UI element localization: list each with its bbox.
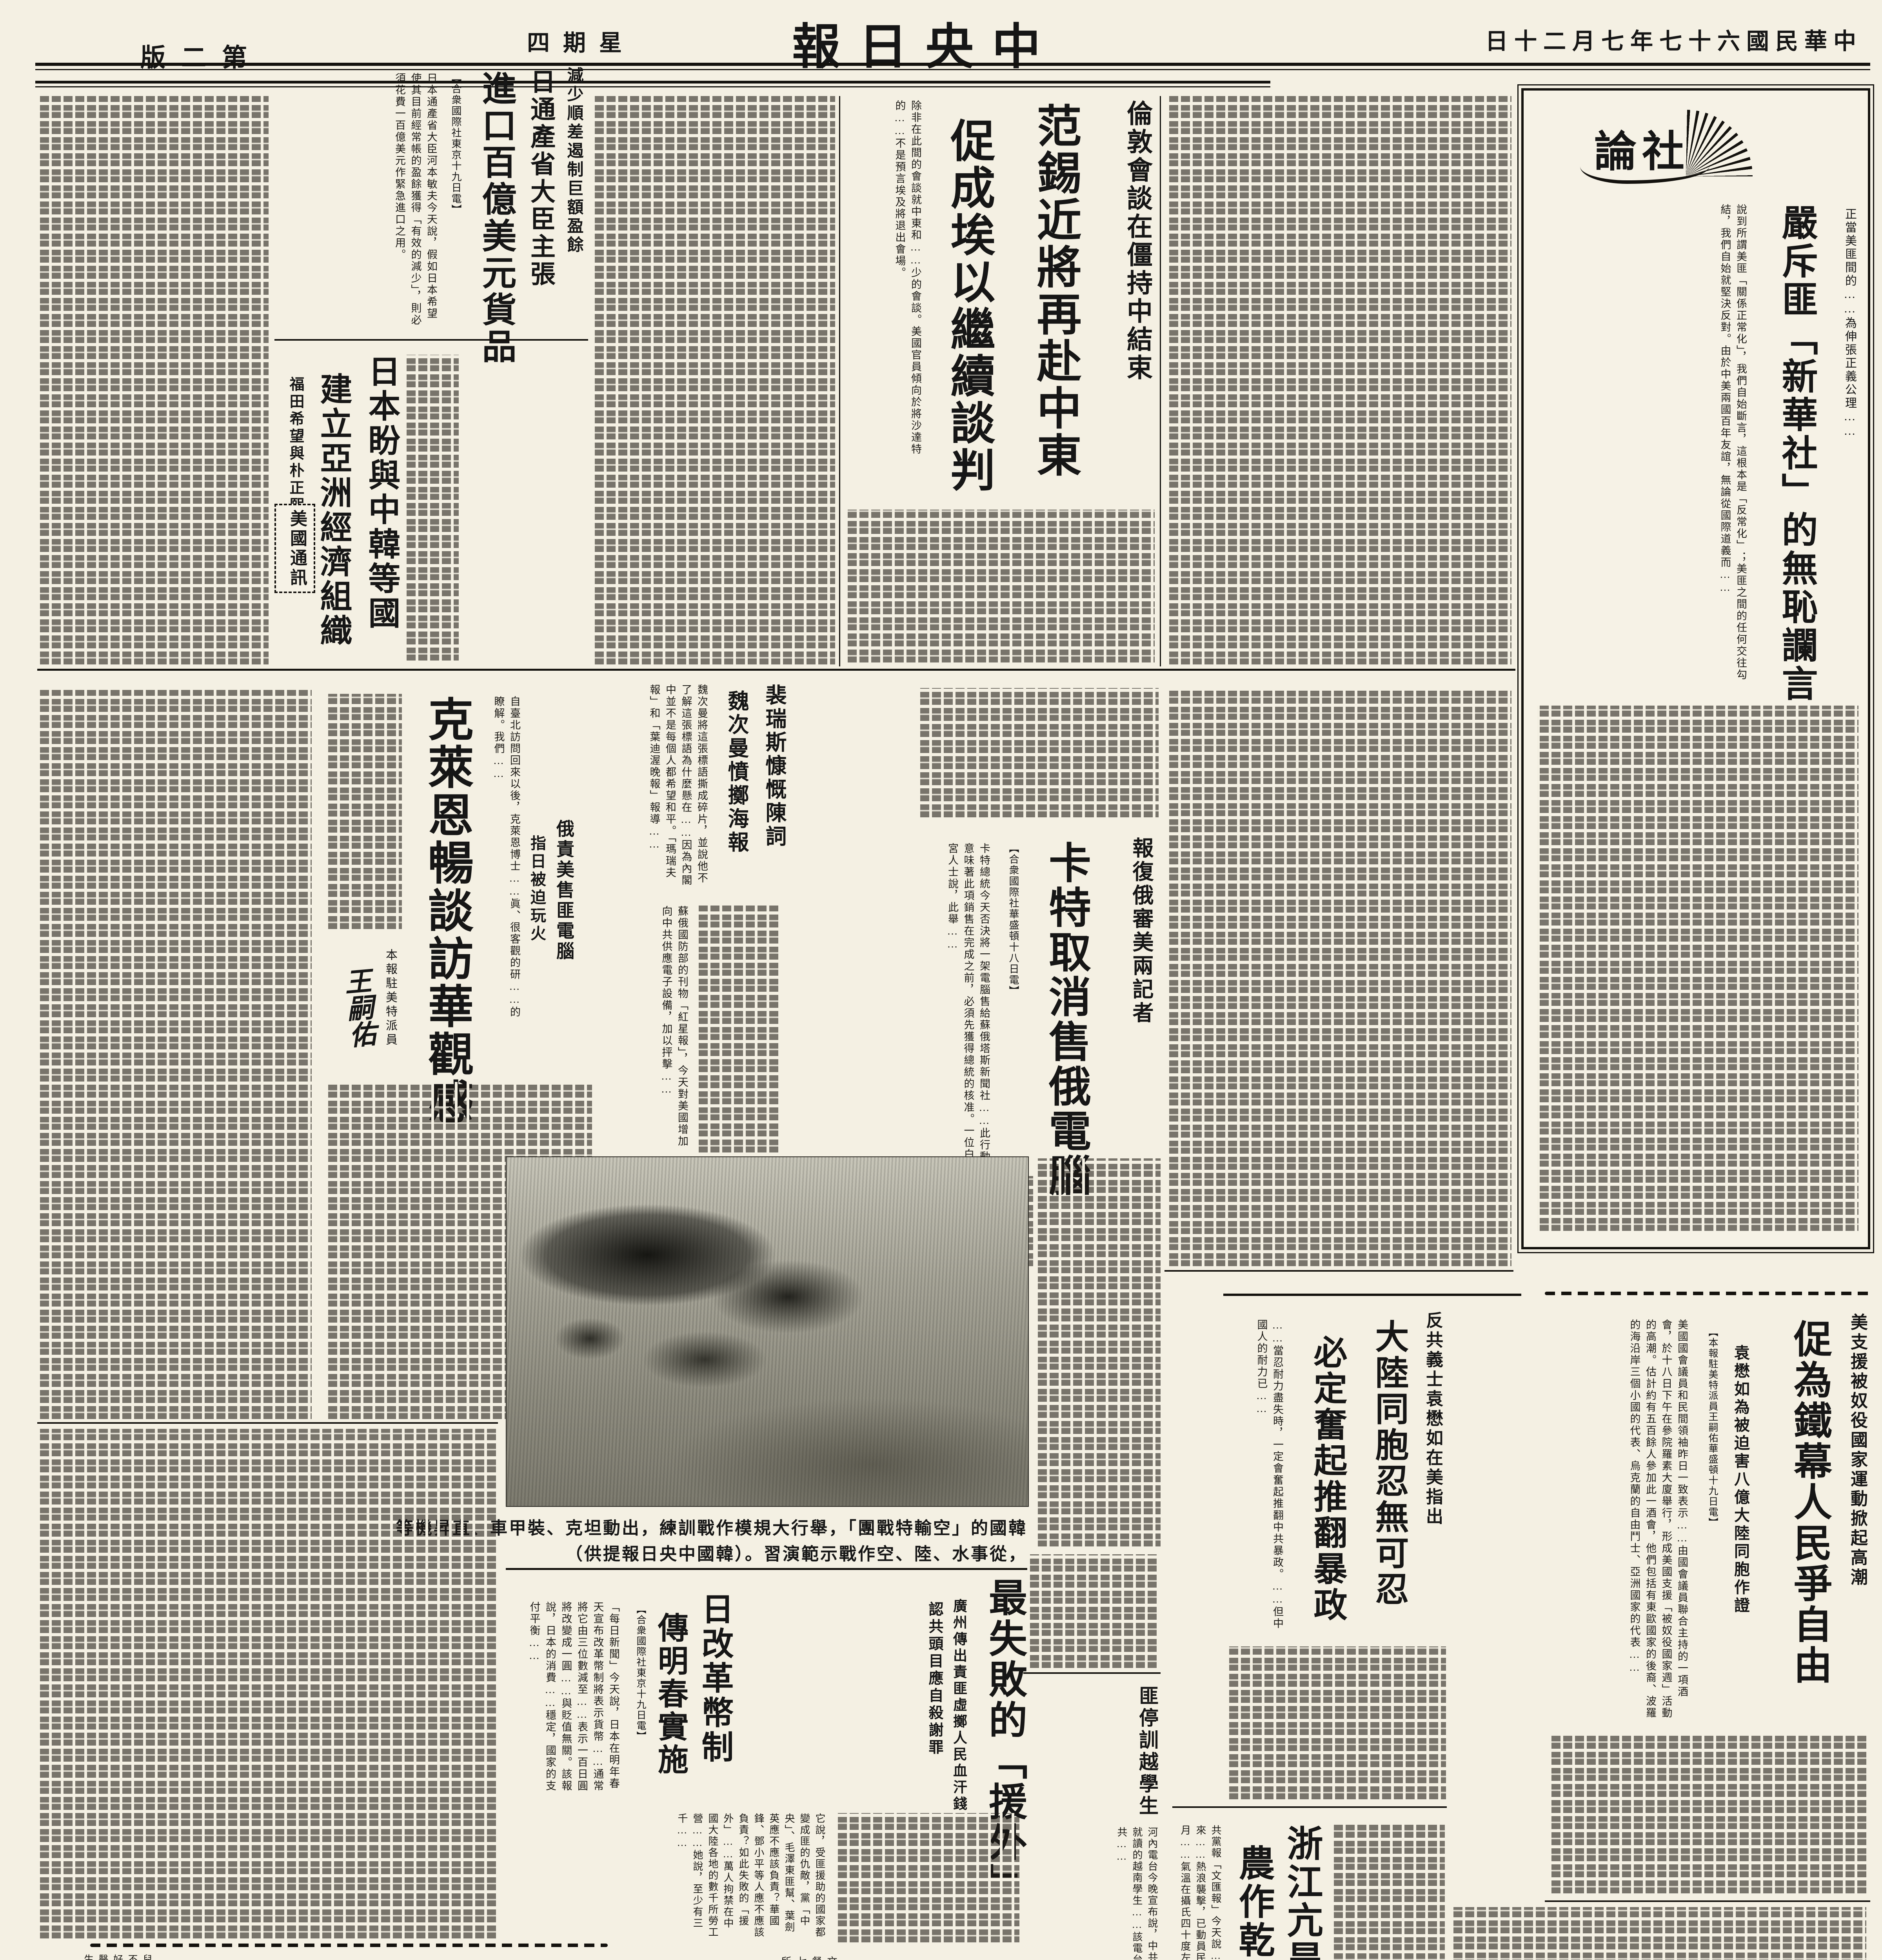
column-rule <box>1160 96 1161 666</box>
editorial-excerpt: 說到所謂美匪「關係正常化」，我們自始斷言，這根本是「反常化」；美匪之間的任何交往… <box>1537 204 1749 686</box>
red-star-kicker: 指日被迫玩火 <box>524 835 545 1000</box>
yen-excerpt: 「每日新聞」今天說，日本在明年春天宣布改革幣制將表示貨幣……通常將它由三位數減至… <box>508 1601 621 1797</box>
japan-imports-title1: 日通產省大臣主張 <box>517 69 554 319</box>
divider <box>274 339 588 341</box>
column-rule <box>839 96 840 666</box>
red-star-title: 俄責美售匪電腦 <box>548 819 573 1007</box>
yen-title1: 日改革幣制 <box>688 1592 731 1812</box>
masthead-rule-3 <box>35 81 1270 83</box>
cline-byline-signature: 王嗣佑 <box>323 966 383 1072</box>
test-tube-excerpt: 【英國奧耳丹十九日電】試管嬰兒的母親布朗太太……今天說，不久將成為世界……情況仍… <box>39 1954 169 1960</box>
text-columns <box>1027 1554 1159 1668</box>
band-rule <box>37 669 1515 671</box>
masthead-rule-1 <box>35 63 1870 66</box>
text-columns <box>845 510 1155 662</box>
korea-lunch-excerpt: 文教部官員……提供學生午餐……九月通過。他們說，這七千所小學……工商業界所…… <box>627 1956 839 1960</box>
divider <box>1223 1294 1521 1296</box>
newspaper-page: 中華民國六十七年七月二十日 中央日報 星期四 第二版 社論 正當美匪間的……為伸… <box>0 0 1882 1960</box>
japan-imports-title2: 進口百億美元貨品 <box>465 71 514 384</box>
vance-title1: 范錫近將再赴中東 <box>1015 103 1078 518</box>
editorial-text-columns <box>1537 706 1858 1231</box>
aid-fail-subtitle: 認共頭目應自殺謝罪 <box>921 1601 942 1805</box>
carter-byline: 【合衆國際社華盛頓十八日電】 <box>999 843 1019 1086</box>
japan-imports-byline: 【合衆國際社東京十九日電】 <box>442 73 461 292</box>
band-rule <box>1164 1270 1513 1272</box>
wavy-rule <box>90 1944 608 1947</box>
carter-kicker: 報復俄審美兩記者 <box>1122 837 1152 1049</box>
zhejiang-excerpt: 共黨報「文匯報」今天說……大陸浙江省遭到三十年來……熱浪襲擊，已動員民衆……上月… <box>1174 1825 1223 1960</box>
text-columns <box>37 1429 496 1938</box>
mainland-excerpt: ……當忍耐力盡失時，一定會奮起推翻中共暴政。……但中國人的耐力已…… <box>1226 1319 1285 1633</box>
carter-excerpt: 卡特總統今天否決將一架電腦售給蘇俄塔斯新聞社……此行動意味著此項銷售在完成之前，… <box>916 843 992 1164</box>
text-columns <box>835 1813 1019 1942</box>
photo-caption-line1: 韓國的「空輸特戰團」，舉行大規模作戰訓練，出動坦克、裝甲車、直昇機等 <box>508 1514 1027 1539</box>
yen-title2: 傳明春實施 <box>649 1612 687 1824</box>
us-newsletter-label: 美國通訊 <box>281 510 306 584</box>
peres-excerpt: 魏次曼將這張標語撕成碎片，並說他不了解這張標語為什麼懸在……因為內閣中並不是每個… <box>600 684 710 888</box>
caption-rule <box>506 1568 1027 1570</box>
cline-byline-label: 本報駐美特派員 <box>378 949 396 1098</box>
mainland-title1: 大陸同胞忍無可忍 <box>1353 1319 1406 1625</box>
text-columns <box>37 96 269 664</box>
freedom-byline: 【本報駐美特派員王嗣佑華盛頓十九日電】 <box>1699 1327 1717 1593</box>
freedom-kicker: 美支援被奴役國家運動掀起高潮 <box>1843 1313 1866 1580</box>
mainland-title2: 必定奮起推翻暴政 <box>1292 1335 1345 1641</box>
japan-imports-excerpt: 日本通產省大臣河本敏夫今天說，假如日本希望使其目前經常帳的盈餘獲得「有效的減少」… <box>355 73 439 327</box>
text-columns <box>325 694 402 929</box>
divider <box>37 1422 498 1424</box>
red-star-excerpt: 蘇俄國防部的刊物「紅星報」，今天對美國增加向中共供應電子設備，加以抨擊…… <box>606 906 690 1149</box>
zhejiang-title1: 浙江亢旱 <box>1273 1825 1321 1960</box>
divider <box>1023 1672 1161 1674</box>
divider <box>1172 1806 1447 1808</box>
masthead-date: 中華民國六十七年七月二十日 <box>1349 23 1862 56</box>
yen-byline: 【合衆國際社東京十九日電】 <box>627 1604 645 1831</box>
masthead-rule-2 <box>35 69 1870 70</box>
japan-asia-title1: 日本盼與中韓等國 <box>355 355 398 645</box>
divider <box>1545 1900 1870 1902</box>
vance-title2: 促成埃以繼續談判 <box>929 118 992 533</box>
text-columns <box>1451 1907 1866 1960</box>
editorial-lead: 正當美匪間的……為伸張正義公理…… <box>1823 208 1858 659</box>
text-columns <box>917 688 1159 817</box>
photo-caption-line2: ，從事水、陸、空作戰示範演習。（韓國中央日報提供） <box>508 1540 1027 1565</box>
freedom-subtitle: 袁懋如為被迫害八億大陸同胞作證 <box>1724 1345 1749 1627</box>
aid-fail-kicker: 廣州傳出責匪虛擲人民血汗錢 <box>949 1599 966 1818</box>
text-columns <box>1549 1733 1866 1893</box>
masthead-page-label: 第二版 <box>125 38 263 74</box>
peres-title1: 裴瑞斯慷慨陳詞 <box>754 684 785 880</box>
aid-fail-excerpt: 它說，受匪援助的國家都變成匪的仇敵，黨「中央」、毛澤東匪幫、葉劍英應不應該負責？… <box>506 1813 827 1938</box>
editorial-headline: 嚴斥匪「新華社」的無恥讕言 <box>1757 204 1815 721</box>
wavy-rule <box>1545 1292 1870 1295</box>
freedom-title: 促為鐵幕人民爭自由 <box>1762 1319 1829 1703</box>
freedom-excerpt: 美國國會議員和民間領袖昨日一致表示……由國會議員聯合主持的一項酒會，於十八日下午… <box>1549 1319 1690 1719</box>
text-columns <box>1035 1158 1161 1546</box>
zhejiang-title2: 農作乾枯 <box>1225 1844 1272 1960</box>
viet-excerpt: 河內電台今晚宣布說，中共決定停止訓練現在中國大陸就讀的越南學生……該電台說，這是… <box>1030 1827 1160 1960</box>
vance-kicker: 倫敦會談在僵持中結束 <box>1115 100 1151 414</box>
masthead-weekday: 星期四 <box>510 24 635 57</box>
text-columns <box>404 355 459 661</box>
newspaper-title: 中央日報 <box>792 7 1059 78</box>
text-columns <box>37 690 312 1419</box>
military-exercise-photo <box>506 1156 1029 1507</box>
mainland-kicker: 反共義士袁懋如在美指出 <box>1417 1311 1442 1539</box>
japan-imports-kicker: 減少順差遏制巨額盈餘 <box>559 67 582 302</box>
text-columns <box>1166 96 1511 664</box>
text-columns <box>696 906 780 1152</box>
peres-title2: 魏次曼憤擲海報 <box>716 690 747 886</box>
vance-excerpt: 除非在此間的會談就中東和……少的會談。美國官員傾向於將沙達特的……不是預言埃及將… <box>845 100 923 492</box>
text-columns <box>592 96 835 664</box>
cline-excerpt: 自臺北訪問回來以後，克萊恩博士……眞、很客觀的研……的瞭解。我們…… <box>475 696 522 1029</box>
text-columns <box>1166 688 1511 1266</box>
text-columns <box>1226 1646 1446 1799</box>
text-columns <box>1331 1825 1445 1960</box>
masthead-rule-4 <box>35 86 1270 87</box>
viet-title: 匪停訓越學生 <box>1126 1686 1157 1819</box>
